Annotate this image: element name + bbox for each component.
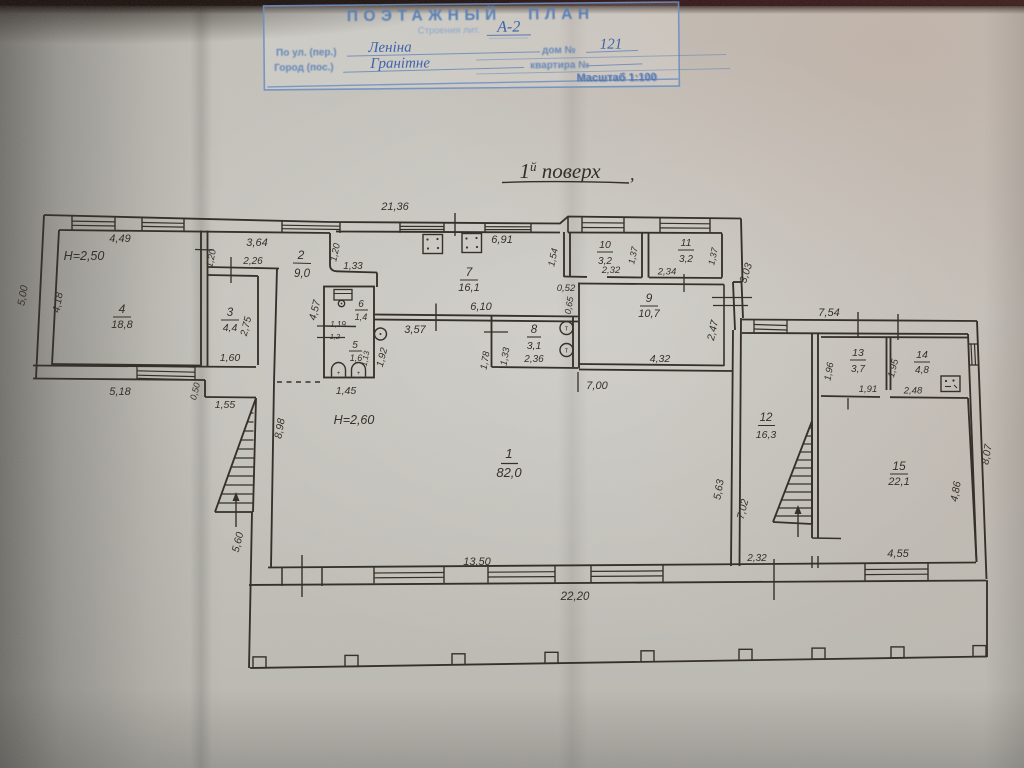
svg-text:82,0: 82,0 bbox=[496, 465, 522, 480]
svg-text:5,18: 5,18 bbox=[109, 386, 131, 398]
svg-text:2,48: 2,48 bbox=[903, 386, 923, 397]
svg-text:16,1: 16,1 bbox=[458, 282, 479, 294]
svg-text:13,50: 13,50 bbox=[463, 556, 491, 568]
svg-text:0,52: 0,52 bbox=[557, 283, 576, 294]
svg-text:+: + bbox=[357, 371, 361, 377]
svg-text:10: 10 bbox=[599, 239, 611, 251]
svg-text:2,34: 2,34 bbox=[657, 267, 677, 278]
svg-text:10,7: 10,7 bbox=[638, 308, 660, 320]
svg-text:3,7: 3,7 bbox=[851, 364, 865, 375]
svg-text:дом №: дом № bbox=[542, 45, 576, 56]
svg-text:Строения лит.: Строения лит. bbox=[418, 25, 480, 37]
svg-text:1,91: 1,91 bbox=[859, 384, 878, 395]
svg-text:1,45: 1,45 bbox=[336, 385, 357, 397]
svg-text:9,0: 9,0 bbox=[294, 268, 311, 280]
svg-text:15: 15 bbox=[892, 459, 906, 473]
svg-text:14: 14 bbox=[916, 349, 928, 361]
svg-text:2: 2 bbox=[297, 248, 305, 262]
svg-text:4,49: 4,49 bbox=[109, 233, 130, 245]
svg-text:,: , bbox=[630, 164, 635, 184]
svg-text:1,2: 1,2 bbox=[330, 332, 341, 341]
svg-text:А-2: А-2 bbox=[496, 19, 520, 36]
svg-text:1,19: 1,19 bbox=[330, 320, 346, 329]
svg-text:13: 13 bbox=[852, 347, 864, 359]
svg-text:2,32: 2,32 bbox=[746, 553, 767, 564]
svg-text:3,57: 3,57 bbox=[404, 324, 426, 336]
svg-text:121: 121 bbox=[600, 37, 623, 53]
svg-text:3,2: 3,2 bbox=[679, 254, 693, 265]
svg-text:1: 1 bbox=[505, 446, 512, 461]
svg-text:1,33: 1,33 bbox=[343, 261, 363, 272]
svg-text:7,54: 7,54 bbox=[818, 307, 839, 319]
svg-text:4,55: 4,55 bbox=[887, 548, 909, 560]
svg-text:3,64: 3,64 bbox=[246, 237, 267, 249]
svg-text:ПОЭТАЖНЫЙ ПЛАН: ПОЭТАЖНЫЙ ПЛАН bbox=[347, 5, 595, 25]
svg-text:11: 11 bbox=[681, 237, 692, 249]
svg-text:2,32: 2,32 bbox=[601, 265, 621, 276]
svg-text:+: + bbox=[337, 371, 341, 377]
svg-text:22,20: 22,20 bbox=[560, 591, 590, 603]
svg-text:1,55: 1,55 bbox=[215, 399, 236, 411]
svg-text:1,4: 1,4 bbox=[355, 312, 368, 322]
svg-text:12: 12 bbox=[760, 412, 773, 424]
svg-text:Леніна: Леніна bbox=[367, 40, 412, 56]
svg-text:21,36: 21,36 bbox=[380, 201, 409, 213]
svg-text:Гранітне: Гранітне bbox=[369, 55, 430, 72]
svg-text:18,8: 18,8 bbox=[111, 319, 133, 331]
svg-text:Масштаб 1:100: Масштаб 1:100 bbox=[576, 71, 656, 84]
svg-text:5: 5 bbox=[352, 340, 358, 351]
svg-text:2,26: 2,26 bbox=[242, 256, 263, 267]
svg-text:1,60: 1,60 bbox=[220, 352, 241, 364]
svg-text:4,32: 4,32 bbox=[650, 353, 671, 365]
svg-text:8: 8 bbox=[531, 324, 538, 336]
svg-text:Н=2,60: Н=2,60 bbox=[334, 413, 375, 427]
svg-text:6,10: 6,10 bbox=[470, 301, 492, 313]
svg-text:7,00: 7,00 bbox=[586, 380, 608, 392]
svg-text:4,4: 4,4 bbox=[223, 322, 238, 334]
svg-text:6,91: 6,91 bbox=[491, 234, 512, 246]
svg-text:2,36: 2,36 bbox=[523, 354, 544, 365]
svg-text:6: 6 bbox=[358, 299, 364, 310]
svg-text:4,8: 4,8 bbox=[915, 365, 929, 376]
svg-text:4: 4 bbox=[119, 302, 126, 316]
svg-text:квартира №: квартира № bbox=[530, 60, 589, 72]
svg-text:Город (пос.): Город (пос.) bbox=[274, 62, 334, 74]
svg-text:По ул. (пер.): По ул. (пер.) bbox=[276, 47, 337, 59]
svg-text:16,3: 16,3 bbox=[756, 429, 777, 441]
svg-text:3,1: 3,1 bbox=[527, 340, 542, 352]
svg-text:3: 3 bbox=[227, 307, 234, 319]
svg-text:Н=2,50: Н=2,50 bbox=[64, 249, 105, 263]
svg-text:9: 9 bbox=[646, 291, 653, 305]
svg-text:22,1: 22,1 bbox=[887, 476, 909, 488]
